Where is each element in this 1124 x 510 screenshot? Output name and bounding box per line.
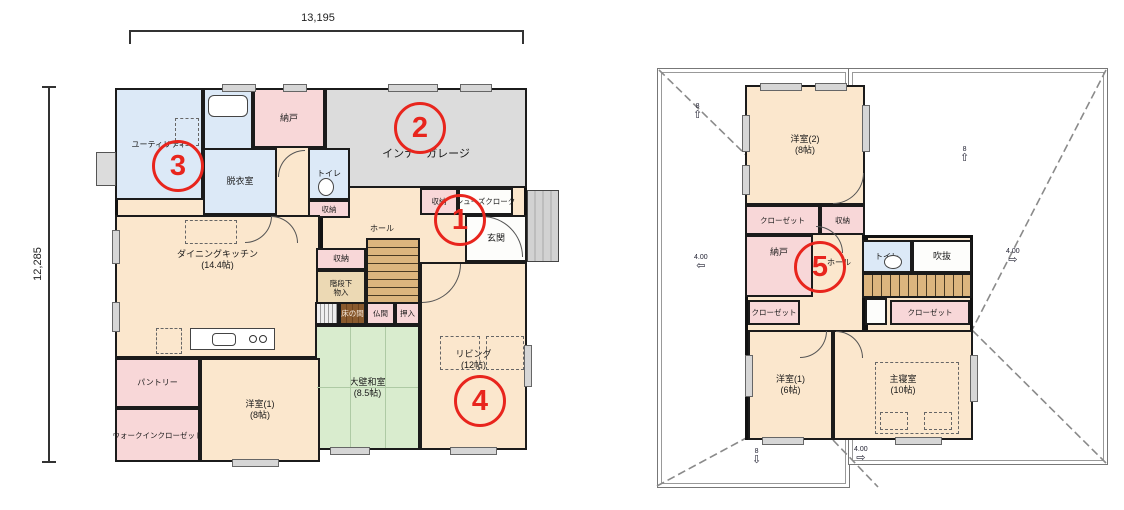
pitch-note: 4.00⇨ bbox=[1006, 248, 1020, 266]
pillow-outline bbox=[880, 412, 908, 430]
toilet-icon-1f bbox=[318, 178, 334, 196]
room-fukinuke-label: 吹抜 bbox=[933, 251, 951, 262]
room-storage-top-label: 収納 bbox=[835, 216, 850, 225]
room-dressing: 脱衣室 bbox=[203, 148, 277, 215]
pitch-note: 8⇩ bbox=[752, 448, 761, 466]
marker-2: 2 bbox=[394, 102, 446, 154]
window-mark bbox=[283, 84, 307, 92]
room-yoshitsu1-1f-label: 洋室(1) bbox=[246, 399, 275, 410]
living-furniture-outline bbox=[440, 336, 480, 370]
room-pantry-label: パントリー bbox=[137, 378, 177, 388]
room-dk-size: (14.4帖) bbox=[201, 260, 234, 271]
toilet-icon-2f bbox=[884, 255, 902, 269]
closet-sliding-1f bbox=[315, 302, 339, 325]
room-butsuma: 仏間 bbox=[366, 302, 395, 325]
closet-small-2f bbox=[865, 298, 887, 325]
stairs-1f bbox=[366, 238, 420, 305]
room-wic-label: ウォークインクローゼット bbox=[113, 431, 203, 440]
arrow-right-icon: ⇨ bbox=[856, 453, 865, 464]
room-pantry: パントリー bbox=[115, 358, 200, 408]
room-fukinuke: 吹抜 bbox=[912, 240, 972, 273]
window-mark bbox=[742, 165, 750, 195]
room-oshiire: 押入 bbox=[395, 302, 420, 325]
room-yoshitsu1-2f-size: (6帖) bbox=[781, 385, 801, 396]
stairs-2f bbox=[862, 273, 972, 298]
window-mark bbox=[760, 83, 802, 91]
dimension-left-tick-top bbox=[42, 86, 56, 88]
stove-icon bbox=[248, 331, 268, 349]
window-mark bbox=[460, 84, 492, 92]
marker-1: 1 bbox=[434, 194, 486, 246]
room-tokonoma-label: 床の間 bbox=[341, 309, 364, 318]
living-furniture-outline bbox=[486, 336, 524, 370]
room-yoshitsu1-1f-size: (8帖) bbox=[250, 410, 270, 421]
side-stoop bbox=[96, 152, 116, 186]
room-tokonoma: 床の間 bbox=[339, 302, 366, 325]
room-wic: ウォークインクローゼット bbox=[115, 408, 200, 462]
room-toilet-1f-label: トイレ bbox=[317, 169, 341, 179]
dimension-left-text: 12,285 bbox=[32, 234, 44, 294]
pillow-outline bbox=[924, 412, 952, 430]
arrow-right-icon: ⇨ bbox=[1008, 255, 1017, 266]
hall-1f-label: ホール bbox=[362, 224, 402, 233]
room-oshiire-label: 押入 bbox=[400, 309, 415, 318]
arrow-up-icon: ⇧ bbox=[693, 110, 702, 121]
window-mark bbox=[524, 345, 532, 387]
window-mark bbox=[742, 115, 750, 152]
window-mark bbox=[112, 230, 120, 264]
dimension-left-line bbox=[48, 87, 50, 463]
room-washitsu-size: (8.5帖) bbox=[354, 388, 382, 399]
pitch-note: 8⇧ bbox=[960, 146, 969, 164]
room-storage-mid: 収納 bbox=[316, 248, 366, 270]
dimension-top-text: 13,195 bbox=[268, 12, 368, 24]
dimension-top-tick-left bbox=[129, 30, 131, 44]
room-closet-right-label: クローゼット bbox=[908, 308, 953, 317]
window-mark bbox=[450, 447, 497, 455]
marker-3: 3 bbox=[152, 140, 204, 192]
window-mark bbox=[112, 302, 120, 332]
window-mark bbox=[330, 447, 370, 455]
room-storage-mid-label: 収納 bbox=[333, 254, 349, 264]
room-dk-label: ダイニングキッチン bbox=[177, 249, 258, 260]
arrow-left-icon: ⇦ bbox=[696, 261, 705, 272]
arrow-up-icon: ⇧ bbox=[960, 153, 969, 164]
window-mark bbox=[895, 437, 942, 445]
room-yoshitsu2-label: 洋室(2) bbox=[791, 134, 820, 145]
tatami-line bbox=[317, 387, 418, 388]
room-stair-storage-label1: 階段下 bbox=[330, 279, 353, 288]
window-mark bbox=[232, 459, 279, 467]
room-yoshitsu1-1f: 洋室(1) (8帖) bbox=[200, 358, 320, 462]
room-closet-left-label: クローゼット bbox=[752, 308, 797, 317]
room-closet-top: クローゼット bbox=[745, 205, 820, 235]
room-washitsu-label: 大壁和室 bbox=[349, 377, 385, 388]
dimension-left-tick-bottom bbox=[42, 461, 56, 463]
room-yoshitsu1-2f-label: 洋室(1) bbox=[776, 374, 805, 385]
window-mark bbox=[388, 84, 438, 92]
entrance-porch bbox=[527, 190, 559, 262]
floorplan-canvas: 13,195 12,285 ユーティリティ UB 納戸 インナーガレージ 脱衣室… bbox=[0, 0, 1124, 510]
pitch-note: 8⇧ bbox=[693, 103, 702, 121]
dk-table-outline bbox=[185, 220, 237, 244]
marker-5: 5 bbox=[794, 241, 846, 293]
window-mark bbox=[222, 84, 256, 92]
room-storage-nando-1f: 納戸 bbox=[253, 88, 325, 148]
dimension-top-tick-right bbox=[522, 30, 524, 44]
room-dressing-label: 脱衣室 bbox=[226, 176, 253, 187]
room-butsuma-label: 仏間 bbox=[373, 309, 388, 318]
room-storage-nando-1f-label: 納戸 bbox=[280, 113, 298, 124]
bathtub-icon bbox=[208, 95, 248, 117]
marker-4: 4 bbox=[454, 375, 506, 427]
room-stair-storage: 階段下 物入 bbox=[316, 270, 366, 305]
pitch-note: 4.00⇦ bbox=[694, 254, 708, 272]
fridge-outline bbox=[156, 328, 182, 354]
window-mark bbox=[745, 355, 753, 397]
pitch-note: 4.00⇨ bbox=[854, 446, 868, 464]
room-stair-storage-label2: 物入 bbox=[334, 288, 349, 297]
window-mark bbox=[970, 355, 978, 402]
room-closet-left: クローゼット bbox=[748, 300, 800, 325]
room-closet-top-label: クローゼット bbox=[760, 216, 805, 225]
window-mark bbox=[815, 83, 847, 91]
dimension-top-line bbox=[130, 30, 523, 32]
arrow-down-icon: ⇩ bbox=[752, 455, 761, 466]
room-yoshitsu2-size: (8帖) bbox=[795, 145, 815, 156]
window-mark bbox=[762, 437, 804, 445]
sink-icon bbox=[212, 333, 236, 346]
window-mark bbox=[862, 105, 870, 152]
room-nando-2f-label: 納戸 bbox=[770, 247, 788, 258]
room-closet-right: クローゼット bbox=[890, 300, 970, 325]
room-toilet-storage-label: 収納 bbox=[322, 205, 337, 214]
